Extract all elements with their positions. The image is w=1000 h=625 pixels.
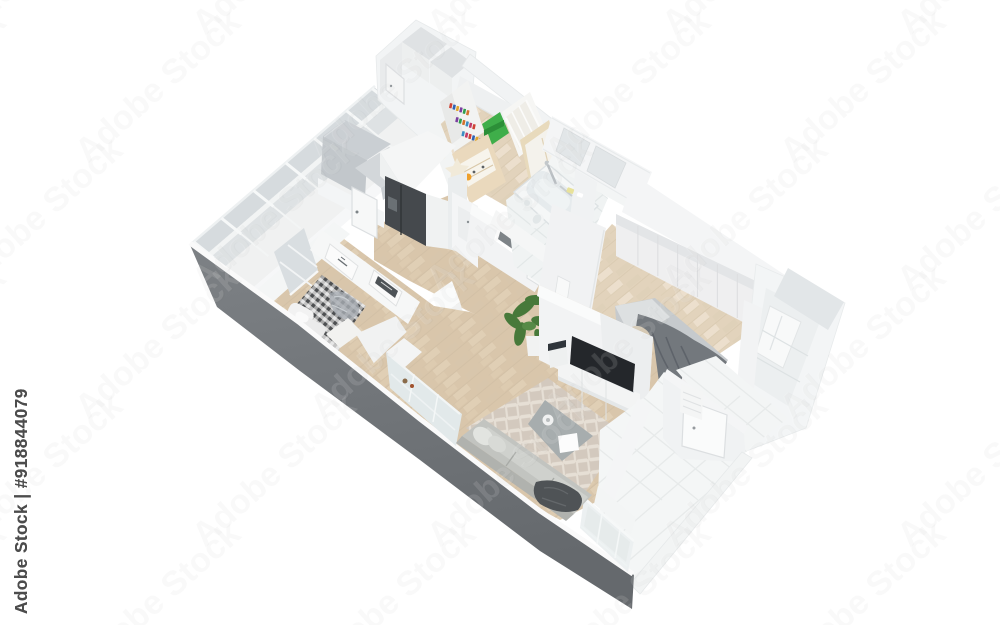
svg-text:Adobe Stock: Adobe Stock bbox=[889, 387, 1000, 554]
svg-text:Adobe Stock: Adobe Stock bbox=[0, 131, 128, 298]
svg-text:Adobe Stock | #918844079: Adobe Stock | #918844079 bbox=[11, 388, 31, 614]
svg-text:Adobe Stock: Adobe Stock bbox=[302, 515, 482, 625]
svg-text:Adobe Stock: Adobe Stock bbox=[67, 515, 247, 625]
svg-text:Adobe Stock: Adobe Stock bbox=[889, 131, 1000, 298]
svg-text:Adobe Stock: Adobe Stock bbox=[772, 515, 952, 625]
svg-text:Adobe Stock: Adobe Stock bbox=[0, 0, 128, 42]
svg-text:Adobe Stock: Adobe Stock bbox=[0, 0, 130, 42]
